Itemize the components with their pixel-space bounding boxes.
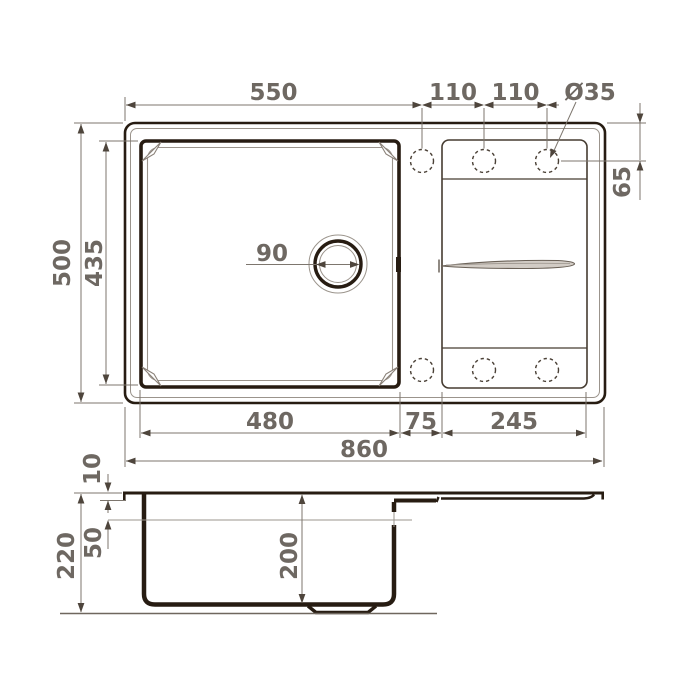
dimension-arrows (78, 102, 644, 613)
section-bowl-profile (144, 494, 394, 605)
bowl-corner-crease (379, 142, 398, 161)
bowl-overflow-notch (396, 257, 401, 272)
dim-label-220: 220 (54, 532, 80, 580)
dim-label-480: 480 (246, 409, 294, 435)
dim-label-50: 50 (81, 527, 107, 559)
bowl-corner-crease (379, 367, 398, 386)
drawing-canvas: 550 110 110 Ø35 65 500 435 90 480 75 245… (0, 0, 700, 700)
faucet-hole-top-3 (536, 150, 559, 173)
dim-label-245: 245 (490, 409, 538, 435)
dim-label-hole-diameter: Ø35 (564, 80, 616, 106)
dim-label-435: 435 (82, 239, 108, 287)
faucet-hole-bottom-2 (473, 359, 496, 382)
faucet-hole-top-1 (411, 150, 434, 173)
dim-label-90: 90 (256, 241, 288, 267)
dim-label-110-b: 110 (491, 80, 539, 106)
section-drainboard-surface (441, 495, 594, 499)
dim-label-500: 500 (50, 239, 76, 287)
dimension-lines (74, 97, 646, 613)
sink-dimension-drawing: 550 110 110 Ø35 65 500 435 90 480 75 245… (0, 0, 700, 700)
dim-label-550: 550 (249, 80, 297, 106)
section-drain-bump (308, 606, 376, 613)
side-view (60, 493, 604, 614)
dim-label-75: 75 (405, 409, 437, 435)
bowl-corner-crease (142, 367, 161, 386)
dim-label-110-a: 110 (429, 80, 477, 106)
dim-label-65: 65 (610, 166, 636, 198)
faucet-hole-bottom-3 (536, 359, 559, 382)
dim-label-10: 10 (80, 453, 106, 485)
faucet-hole-top-2 (473, 150, 496, 173)
dim-label-200: 200 (277, 532, 303, 580)
bowl-corner-crease (142, 142, 161, 161)
dimension-labels: 550 110 110 Ø35 65 500 435 90 480 75 245… (50, 80, 636, 580)
faucet-hole-bottom-1 (411, 359, 434, 382)
section-step-riser (437, 497, 439, 502)
dim-label-860: 860 (340, 437, 388, 463)
top-view (125, 123, 605, 403)
